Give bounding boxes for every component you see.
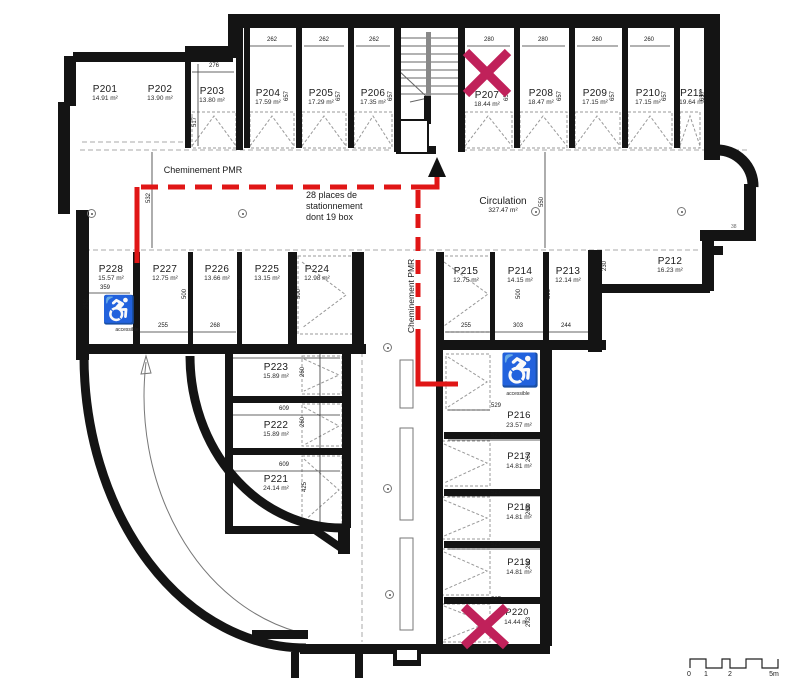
- red-annotations: [0, 0, 800, 688]
- pmr-route-end: [418, 340, 458, 384]
- pmr-route-hook: [424, 176, 437, 187]
- stair-entry-arrow-icon: [428, 157, 446, 177]
- parking-floor-plan: P20114.91 m² P20213.90 m² P20313.80 m² P…: [0, 0, 800, 688]
